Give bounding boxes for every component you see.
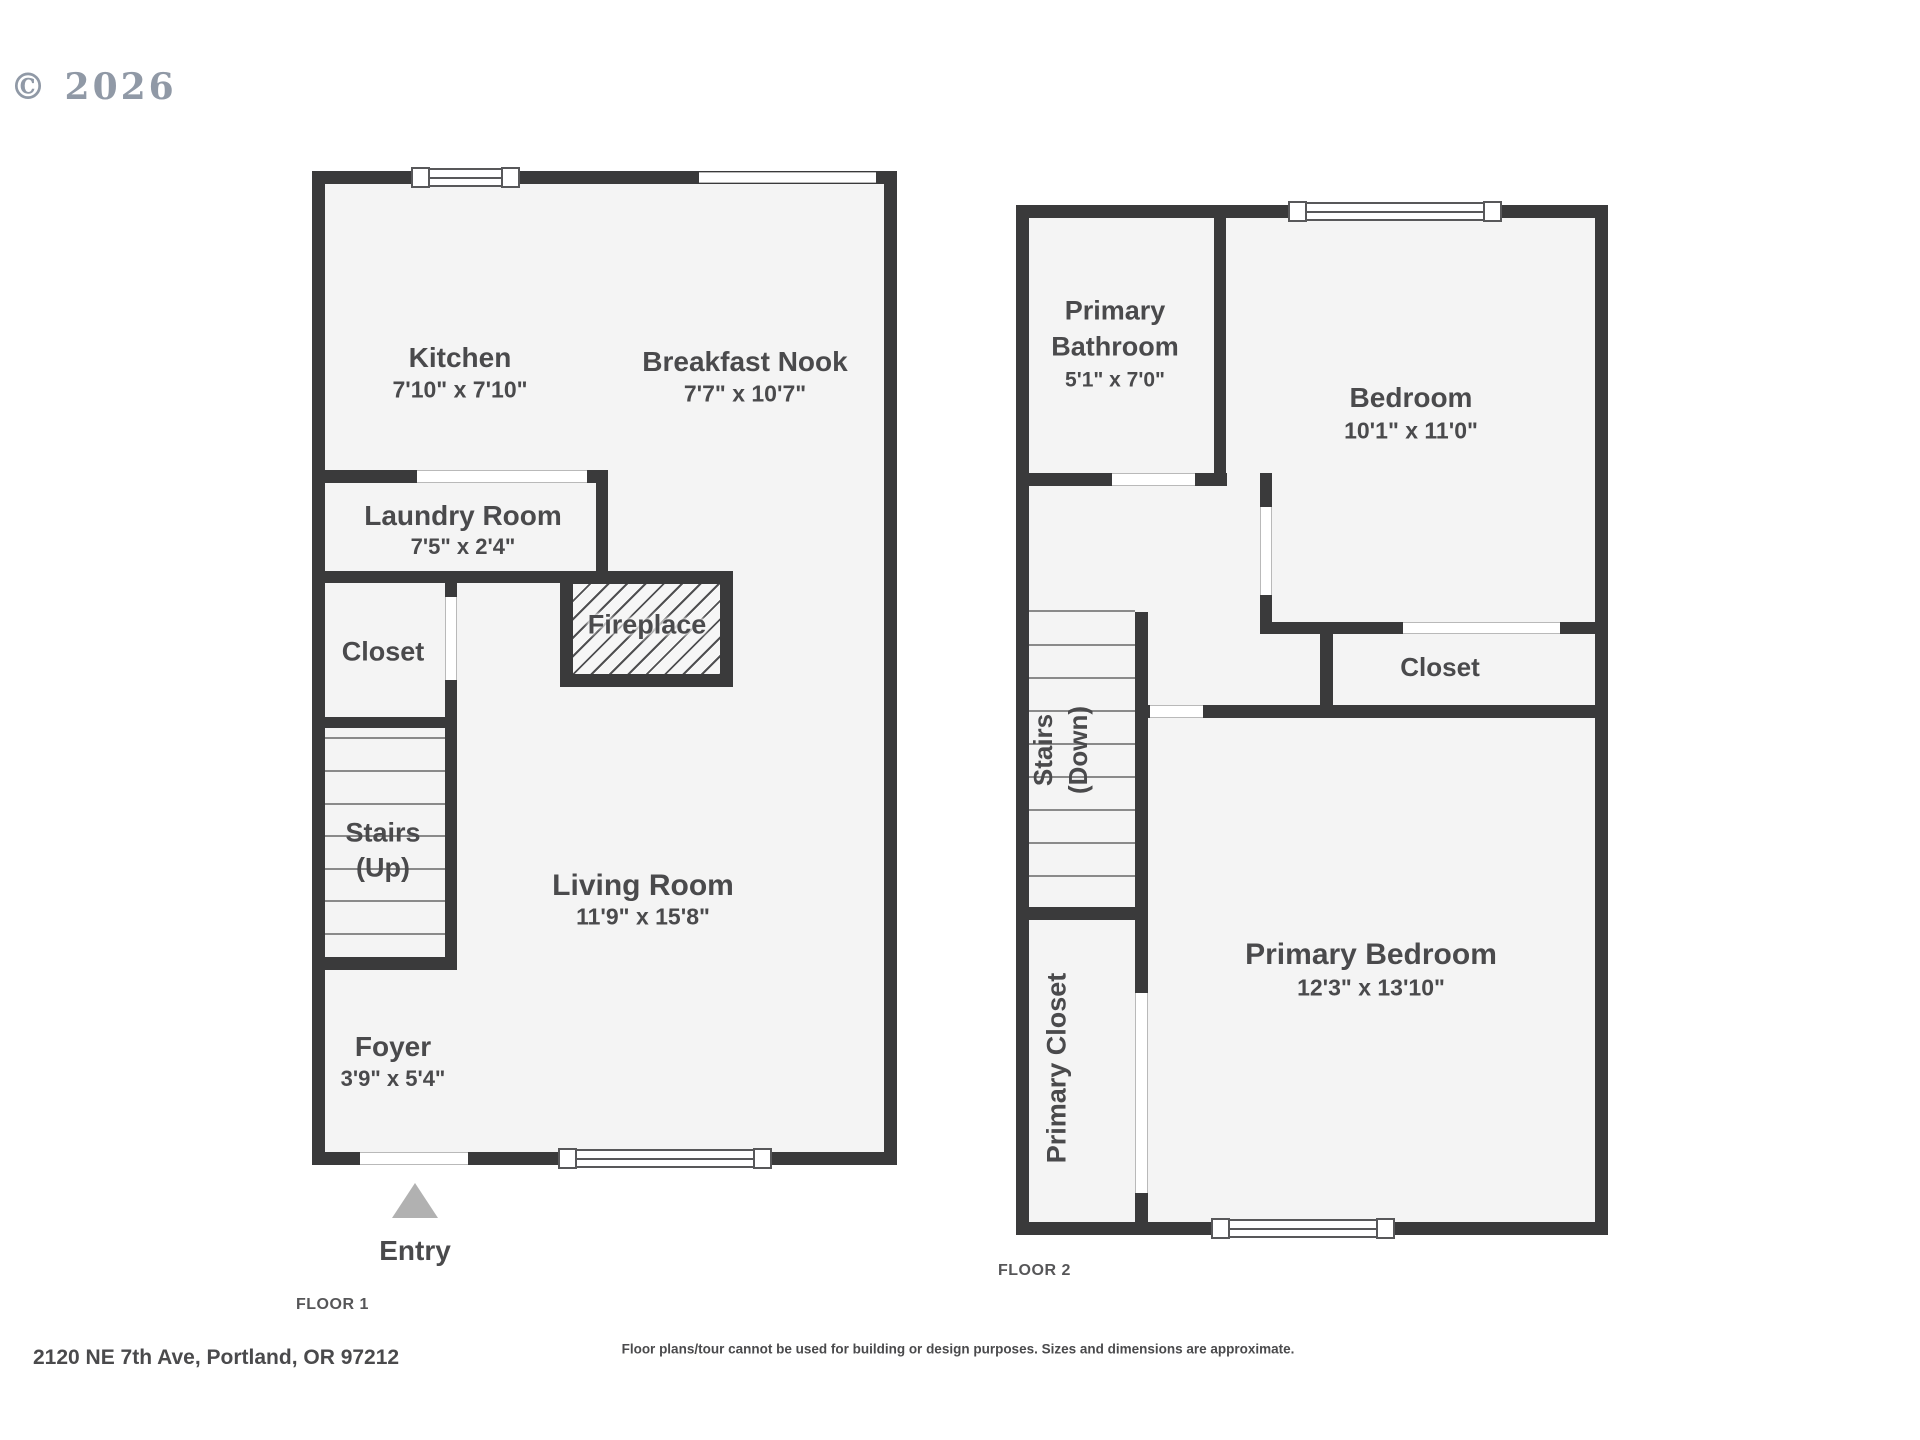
bathroom-bottom-wall-left	[1016, 473, 1112, 486]
window-end-post	[558, 1148, 577, 1169]
window-end-post	[411, 167, 430, 188]
entry-door-opening	[360, 1152, 468, 1165]
stairs1-label-line2: (Up)	[356, 855, 410, 882]
bathroom-dims: 5'1" x 7'0"	[1065, 370, 1165, 391]
floor2-right-wall	[1595, 205, 1608, 1235]
entry-label: Entry	[379, 1237, 451, 1265]
stair-tread	[1029, 610, 1135, 612]
bathroom-door-opening	[1112, 473, 1195, 486]
bedroom-label: Bedroom	[1350, 384, 1473, 412]
entry-arrow-icon	[392, 1183, 438, 1218]
closet2-top-wall-left	[1260, 622, 1403, 634]
nook-window-band	[699, 172, 876, 183]
stairs2-label: Stairs (Down)	[1026, 706, 1096, 794]
closet1-label: Closet	[342, 639, 425, 666]
stair-tread	[1029, 875, 1135, 877]
laundry-label: Laundry Room	[364, 502, 562, 530]
closet1-door-opening	[445, 597, 457, 680]
disclaimer-text: Floor plans/tour cannot be used for buil…	[622, 1342, 1295, 1357]
stair-tread	[325, 900, 445, 902]
bedroom-door-opening	[1260, 507, 1272, 595]
stairs2-right-wall	[1135, 612, 1148, 907]
primary-bedroom-dims: 12'3" x 13'10"	[1297, 977, 1445, 1000]
property-address: 2120 NE 7th Ave, Portland, OR 97212	[33, 1346, 399, 1370]
bedroom-window	[1288, 202, 1502, 221]
stair-tread	[325, 737, 445, 739]
kitchen-dims: 7'10" x 7'10"	[392, 379, 527, 402]
hall-bedroom-wall-upper	[1260, 473, 1272, 507]
living-room-label: Living Room	[552, 871, 734, 901]
bathroom-label-line1: Primary	[1065, 298, 1166, 325]
primary-closet-label: Primary Closet	[1044, 973, 1071, 1164]
primary-closet-door-opening	[1135, 993, 1148, 1193]
foyer-dims: 3'9" x 5'4"	[341, 1068, 446, 1090]
closet2-top-wall-right	[1560, 622, 1595, 634]
closet2-door-opening	[1403, 622, 1560, 634]
window-end-post	[753, 1148, 772, 1169]
primary-closet-wall-lower	[1135, 1193, 1148, 1222]
living-room-dims: 11'9" x 15'8"	[576, 906, 710, 929]
closet2-bottom-wall	[1203, 705, 1595, 718]
window-end-post	[1483, 201, 1502, 222]
floor2-tag: FLOOR 2	[998, 1262, 1071, 1280]
stair-tread	[1029, 809, 1135, 811]
primary-bedroom-window	[1211, 1219, 1395, 1238]
laundry-opening	[417, 470, 587, 483]
stairs2-bottom-wall	[1016, 907, 1148, 920]
stair-tread	[1029, 842, 1135, 844]
bathroom-bottom-wall-right	[1195, 473, 1227, 486]
primary-bedroom-label: Primary Bedroom	[1245, 940, 1497, 970]
stair-tread	[325, 803, 445, 805]
closet1-bottom-wall	[312, 717, 457, 728]
primary-bedroom-door-opening	[1150, 705, 1203, 718]
laundry-right-wall	[596, 470, 608, 583]
window-end-post	[1376, 1218, 1395, 1239]
kitchen-label: Kitchen	[409, 344, 512, 372]
window-end-post	[1211, 1218, 1230, 1239]
floor1-left-wall	[312, 171, 325, 1165]
breakfast-nook-dims: 7'7" x 10'7"	[684, 383, 806, 406]
closet1-right-wall-upper	[445, 571, 457, 597]
bathroom-right-wall	[1214, 205, 1226, 473]
window-end-post	[1288, 201, 1307, 222]
fireplace-label: Fireplace	[588, 612, 707, 639]
kitchen-window	[411, 168, 520, 187]
closet2-label: Closet	[1400, 654, 1479, 680]
window-end-post	[501, 167, 520, 188]
stair-tread	[325, 933, 445, 935]
breakfast-nook-label: Breakfast Nook	[642, 348, 847, 376]
laundry-dims: 7'5" x 2'4"	[411, 536, 516, 558]
stairs1-right-wall	[445, 728, 457, 957]
stairs2-label-line1: Stairs	[1026, 706, 1061, 794]
stair-tread	[1029, 644, 1135, 646]
stair-tread	[325, 770, 445, 772]
stairs2-label-line2: (Down)	[1061, 706, 1096, 794]
floor-plan-page: © 2026	[0, 0, 1920, 1440]
stairs1-bottom-wall	[312, 957, 457, 970]
floor1-right-wall	[884, 171, 897, 1165]
stairs1-label-line1: Stairs	[345, 820, 420, 847]
foyer-label: Foyer	[355, 1033, 431, 1061]
stair-tread	[1029, 677, 1135, 679]
bedroom-dims: 10'1" x 11'0"	[1344, 420, 1478, 443]
bathroom-label-line2: Bathroom	[1051, 334, 1179, 361]
floor1-tag: FLOOR 1	[296, 1296, 369, 1314]
living-room-window	[558, 1149, 772, 1168]
laundry-bottom-wall	[312, 571, 560, 583]
primary-closet-wall-upper	[1135, 918, 1148, 993]
copyright-watermark: © 2026	[10, 66, 177, 108]
laundry-top-wall-left	[312, 470, 417, 483]
